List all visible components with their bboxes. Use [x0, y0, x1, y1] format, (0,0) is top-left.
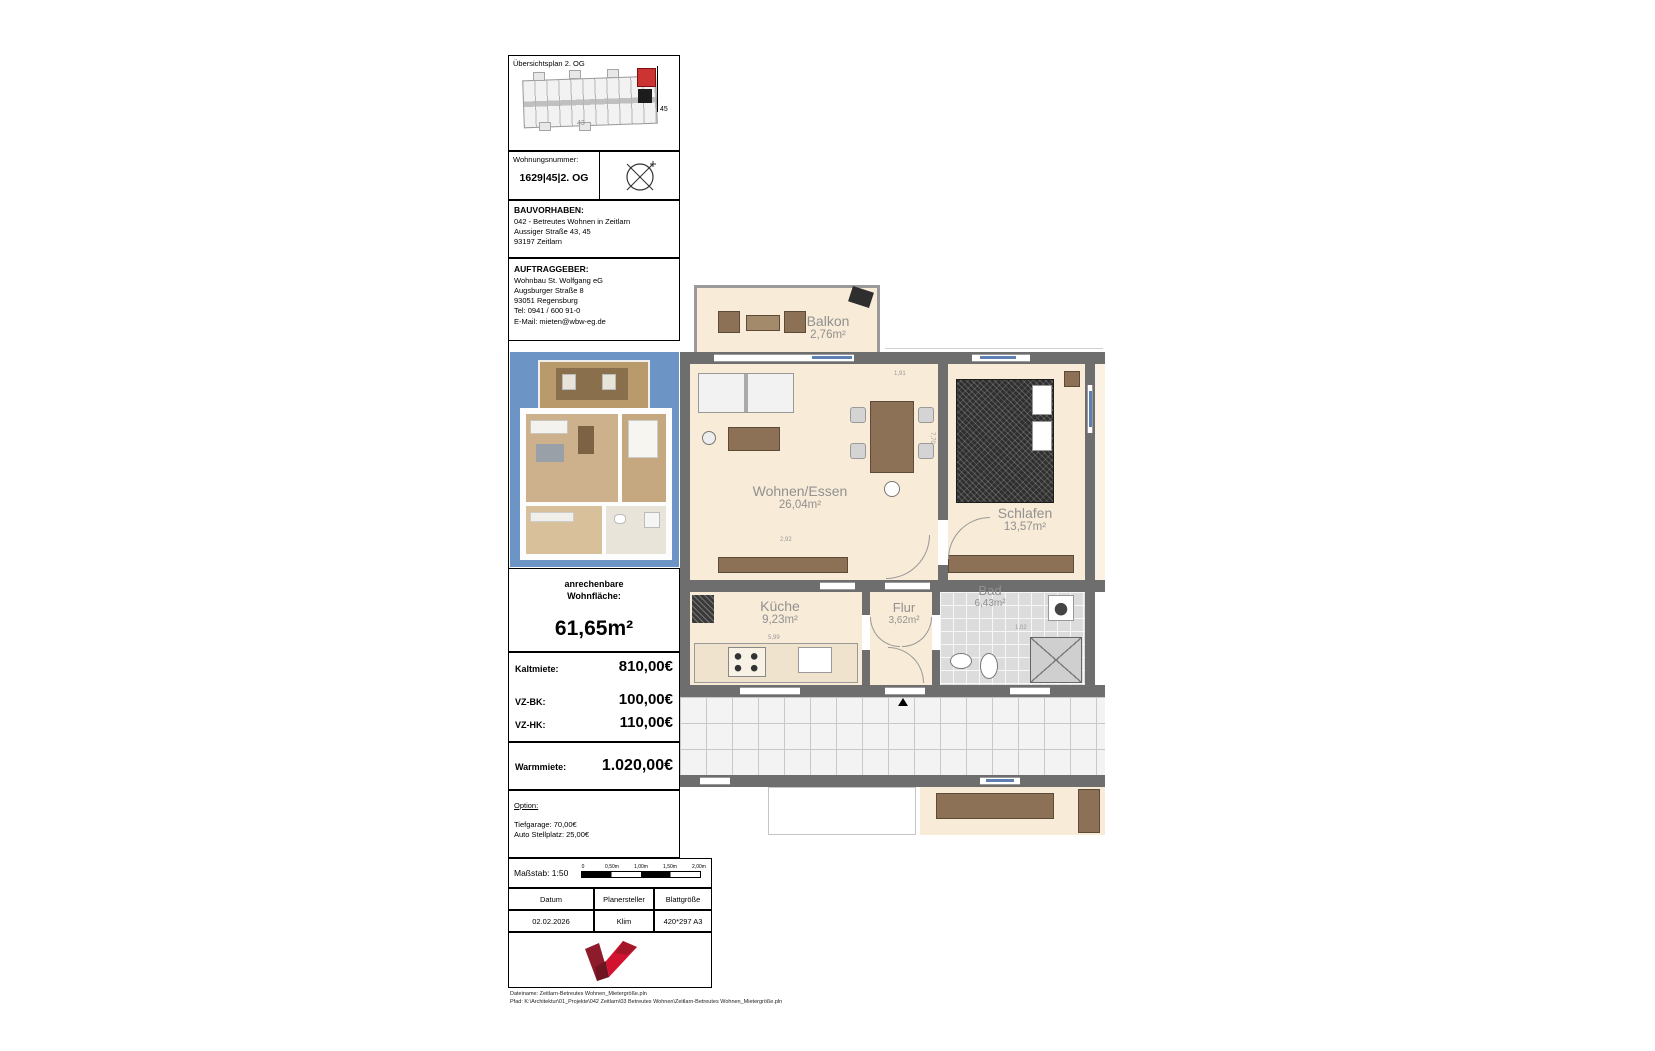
- room-area: 2,76m²: [780, 329, 876, 341]
- neighbor-sofa: [936, 793, 1054, 819]
- vz-hk-label: VZ-HK:: [515, 720, 546, 730]
- window-glass-living: [812, 356, 852, 359]
- kaltmiete-value: 810,00€: [619, 658, 673, 675]
- balcony-chair: [718, 311, 740, 333]
- meta-header-blattgroesse: Blattgröße: [654, 888, 712, 910]
- meta-value-blattgroesse: 420*297 A3: [654, 910, 712, 932]
- dining-table: [870, 401, 914, 473]
- dining-chair: [918, 407, 934, 423]
- auftraggeber-line: Tel: 0941 / 600 91-0: [514, 306, 674, 316]
- toilet: [980, 653, 998, 679]
- meta-header-planersteller: Planersteller: [594, 888, 654, 910]
- dining-chair: [850, 407, 866, 423]
- building-divider-line: [657, 66, 658, 112]
- kitchen-tall-cabinet: [692, 595, 714, 623]
- logo-box: [508, 932, 712, 988]
- overview-title: Übersichtsplan 2. OG: [513, 59, 585, 68]
- auftraggeber-line: Wohnbau St. Wolfgang eG: [514, 276, 674, 286]
- window-kitchen: [740, 687, 800, 695]
- room-label-wohnen: Wohnen/Essen 26,04m²: [720, 483, 880, 511]
- room-label-balkon: Balkon 2,76m²: [780, 313, 876, 341]
- room-name: Bad: [945, 583, 1035, 598]
- room-label-kueche: Küche 9,23m²: [730, 598, 830, 626]
- render-toilet: [614, 514, 626, 524]
- wohnbau-w-logo: [579, 939, 641, 981]
- highlighted-unit-marker: [637, 68, 656, 87]
- scale-bar-graphic: [581, 871, 701, 878]
- kaltmiete-label: Kaltmiete:: [515, 664, 559, 674]
- rent-box: Kaltmiete: 810,00€ VZ-BK: 100,00€ VZ-HK:…: [508, 652, 680, 742]
- dimension-label: 1,91: [894, 371, 906, 377]
- render-shower: [644, 512, 660, 528]
- footer-filename: Dateiname: Zeitlarn-Betreutes Wohnen_Mie…: [510, 991, 647, 997]
- scale-label: Maßstab: 1:50: [514, 868, 568, 878]
- render-kitchen-counter: [530, 512, 574, 522]
- nightstand: [1064, 371, 1080, 387]
- room-area: 3,62m²: [876, 615, 932, 626]
- unit-number-value: 1629|45|2. OG: [513, 172, 595, 184]
- neighbor-room-sliver: [1095, 364, 1105, 580]
- bed-pillow: [1032, 385, 1052, 415]
- neighbor-sofa: [1078, 789, 1100, 833]
- window-bath: [1010, 687, 1050, 695]
- wall-neighbor-top: [680, 775, 1105, 787]
- scale-tick: 2,00m: [692, 864, 706, 870]
- wall-left: [680, 352, 690, 697]
- balcony-table: [746, 315, 780, 331]
- room-name: Küche: [730, 598, 830, 614]
- bath-sink: [950, 653, 972, 669]
- room-area: 9,23m²: [730, 614, 830, 626]
- meta-table: Datum Planersteller Blattgröße 02.02.202…: [508, 888, 712, 932]
- window-glass-right: [1089, 391, 1092, 427]
- apartment-3d-rendering: [510, 352, 679, 567]
- door-opening-bedroom: [938, 520, 948, 565]
- window-glass-neighbor: [986, 779, 1014, 782]
- render-bed: [628, 420, 658, 458]
- dining-chair: [918, 443, 934, 459]
- footer-filepath: Pfad: K:\Architektur\01_Projekte\042 Zei…: [510, 999, 782, 1005]
- unit-number-cell: Wohnungsnummer: 1629|45|2. OG: [509, 152, 599, 199]
- scale-tick: 0,50m: [605, 864, 619, 870]
- room-label-schlafen: Schlafen 13,57m²: [970, 505, 1080, 533]
- scale-bar: 0 0,50m 1,00m 1,50m 2,00m: [581, 864, 703, 878]
- warmmiete-label: Warmmiete:: [515, 762, 566, 772]
- door-opening-kitchen: [820, 582, 855, 590]
- entry-marker-icon: [898, 698, 908, 706]
- north-compass-icon: [620, 156, 660, 196]
- room-area: 6,43m²: [945, 598, 1035, 609]
- shower: [1030, 637, 1082, 683]
- render-chair: [562, 374, 576, 390]
- vz-hk-value: 110,00€: [620, 714, 673, 731]
- stove: [728, 647, 766, 677]
- room-name: Flur: [876, 600, 932, 615]
- entry-door-opening: [885, 687, 925, 695]
- overview-building-wing: [539, 122, 551, 131]
- room-label-flur: Flur 3,62m²: [876, 600, 932, 626]
- bauvorhaben-box: BAUVORHABEN: 042 - Betreutes Wohnen in Z…: [508, 200, 680, 258]
- overview-plan-box: Übersichtsplan 2. OG 43 45: [508, 55, 680, 151]
- dining-chair: [884, 481, 900, 497]
- living-area-box: anrechenbare Wohnfläche: 61,65m²: [508, 568, 680, 652]
- auftraggeber-line: Augsburger Straße 8: [514, 286, 674, 296]
- neighbor-room-outline: [768, 787, 916, 835]
- washing-machine: [1048, 595, 1074, 621]
- dimension-label: 5,99: [768, 635, 780, 641]
- scale-tick: 1,50m: [663, 864, 677, 870]
- coffee-table: [728, 427, 780, 451]
- bauvorhaben-line: 93197 Zeitlarn: [514, 237, 674, 247]
- dimension-label: 2,92: [780, 537, 792, 543]
- corridor: [680, 697, 1105, 775]
- window-glass-bedroom: [980, 356, 1016, 359]
- sideboard: [718, 557, 848, 573]
- room-area: 13,57m²: [970, 521, 1080, 533]
- scale-tick: 1,00m: [634, 864, 648, 870]
- dimension-label: 7,70: [929, 432, 935, 444]
- door-opening-kitchen-hall: [862, 615, 870, 650]
- window-neighbor: [700, 777, 730, 785]
- plan-sheet: Übersichtsplan 2. OG 43 45 Wohnungsnumme…: [0, 0, 1655, 1051]
- dimension-label: 1,02: [1015, 625, 1027, 631]
- room-label-bad: Bad 6,43m²: [945, 583, 1035, 609]
- overview-building-wing: [569, 70, 581, 79]
- room-name: Schlafen: [970, 505, 1080, 521]
- meta-value-planersteller: Klim: [594, 910, 654, 932]
- room-area: 26,04m²: [720, 499, 880, 511]
- unit-number-label: Wohnungsnummer:: [513, 155, 595, 165]
- render-wall-line: [618, 414, 622, 502]
- auftraggeber-box: AUFTRAGGEBER: Wohnbau St. Wolfgang eG Au…: [508, 258, 680, 341]
- render-wall-line: [526, 502, 666, 506]
- kitchen-counter: [694, 643, 858, 683]
- render-dining-table: [578, 426, 594, 454]
- door-opening-hall: [885, 582, 930, 590]
- kitchen-sink: [798, 647, 832, 673]
- scale-box: Maßstab: 1:50 0 0,50m 1,00m 1,50m 2,00m: [508, 858, 712, 888]
- living-area-label: anrechenbare Wohnfläche:: [509, 578, 679, 602]
- compass-cell: [599, 152, 679, 199]
- sofa: [698, 373, 794, 413]
- render-rug: [536, 444, 564, 462]
- stairwell-marker: [638, 89, 652, 103]
- bauvorhaben-line: 042 - Betreutes Wohnen in Zeitlarn: [514, 217, 674, 227]
- option-line-garage: Tiefgarage: 70,00€: [514, 820, 674, 830]
- option-box: Option: Tiefgarage: 70,00€ Auto Stellpla…: [508, 790, 680, 858]
- neighbor-balcony-outline: [885, 291, 1103, 349]
- bauvorhaben-line: Aussiger Straße 43, 45: [514, 227, 674, 237]
- overview-building-wing: [607, 69, 619, 78]
- building-number-43: 43: [577, 120, 585, 127]
- warmmiete-box: Warmmiete: 1.020,00€: [508, 742, 680, 790]
- unit-number-box: Wohnungsnummer: 1629|45|2. OG: [508, 151, 680, 200]
- vz-bk-value: 100,00€: [619, 691, 673, 708]
- overview-building-wing: [533, 72, 545, 81]
- room-name: Wohnen/Essen: [720, 483, 880, 499]
- render-chair: [602, 374, 616, 390]
- meta-header-datum: Datum: [508, 888, 594, 910]
- apartment-3d-image-box: [508, 341, 680, 568]
- floor-plan: Balkon 2,76m²: [680, 285, 1105, 835]
- auftraggeber-line: E-Mail: mieten@wbw-eg.de: [514, 317, 674, 327]
- meta-value-datum: 02.02.2026: [508, 910, 594, 932]
- option-line-stellplatz: Auto Stellplatz: 25,00€: [514, 830, 674, 840]
- living-area-value: 61,65m²: [509, 617, 679, 641]
- auftraggeber-heading: AUFTRAGGEBER:: [514, 264, 674, 274]
- auftraggeber-line: 93051 Regensburg: [514, 296, 674, 306]
- render-sofa: [530, 420, 568, 434]
- plant: [702, 431, 716, 445]
- door-opening-bath: [932, 615, 940, 650]
- scale-tick: 0: [582, 864, 585, 870]
- bauvorhaben-heading: BAUVORHABEN:: [514, 205, 674, 215]
- warmmiete-value: 1.020,00€: [602, 757, 673, 775]
- scale-bar-ticks: 0 0,50m 1,00m 1,50m 2,00m: [581, 864, 703, 871]
- room-name: Balkon: [780, 313, 876, 329]
- dining-chair: [850, 443, 866, 459]
- vz-bk-label: VZ-BK:: [515, 697, 546, 707]
- building-number-45: 45: [660, 106, 668, 113]
- option-heading: Option:: [514, 801, 674, 810]
- bed-pillow: [1032, 421, 1052, 451]
